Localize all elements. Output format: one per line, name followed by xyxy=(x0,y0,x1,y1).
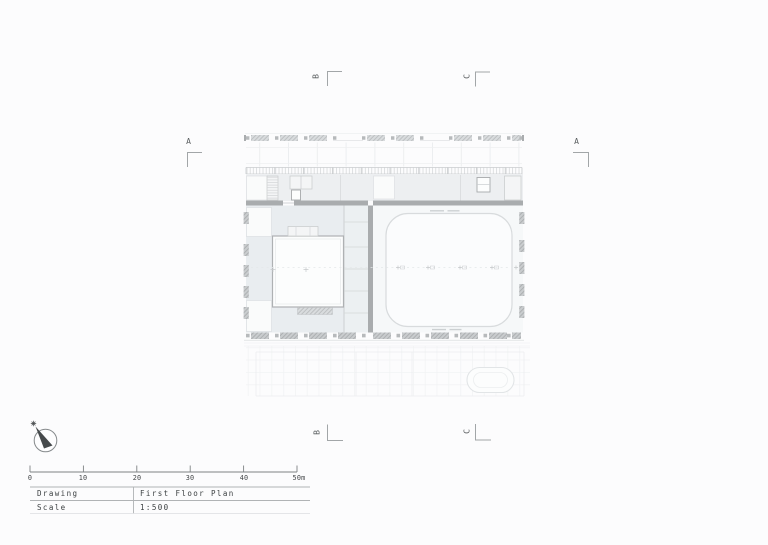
section-cut-bracket-c-bottom xyxy=(476,424,492,440)
room xyxy=(374,176,395,199)
central-wall xyxy=(368,206,373,333)
section-letter-a-right: A xyxy=(572,137,582,146)
section-cut-bracket-b-top xyxy=(328,72,343,87)
drawing-sheet: A A B C B C 0 10 20 30 40 50m Drawing Fi… xyxy=(0,0,768,545)
scale-tick-label: 10 xyxy=(70,474,96,482)
hall-rounded-outline xyxy=(386,214,512,327)
courtyard-appendage xyxy=(288,227,318,237)
section-letter-c-bottom: C xyxy=(462,427,471,437)
drawing-scale: 1:500 xyxy=(140,503,170,512)
room xyxy=(292,190,301,200)
section-letter-c-top: C xyxy=(462,72,471,82)
section-letter-a-left: A xyxy=(184,137,194,146)
bottom-facade-hatched-walls xyxy=(251,333,521,340)
scale-tick-label: 30 xyxy=(177,474,203,482)
section-cut-bracket-b-bottom xyxy=(328,425,344,441)
corner-room xyxy=(247,301,272,332)
courtyard xyxy=(273,236,344,307)
building-plan xyxy=(244,134,530,397)
scale-tick-label: 20 xyxy=(124,474,150,482)
section-cut-bracket-c-top xyxy=(476,72,491,87)
scale-tick-label: 0 xyxy=(17,474,43,482)
scale-bar xyxy=(30,466,297,473)
drawing-title: First Floor Plan xyxy=(140,489,235,498)
section-cut-bracket-a-left xyxy=(188,153,203,168)
site-below-faint xyxy=(244,343,530,396)
glazing-mullions xyxy=(246,168,522,175)
courtyard-bottom-wall xyxy=(298,308,333,315)
floor-plan-canvas xyxy=(0,0,768,545)
scale-tick-label: 50m xyxy=(286,474,312,482)
scale-tick-label: 40 xyxy=(231,474,257,482)
section-letter-b-top: B xyxy=(311,71,320,81)
section-letter-b-bottom: B xyxy=(312,427,321,437)
running-track xyxy=(467,368,514,393)
title-block-label-drawing: Drawing xyxy=(37,489,78,498)
terrace-strip xyxy=(246,143,522,167)
section-cut-bracket-a-right xyxy=(573,153,589,168)
north-arrow-icon xyxy=(31,421,57,452)
title-block-label-scale: Scale xyxy=(37,503,67,512)
room xyxy=(247,176,268,200)
room xyxy=(505,176,522,200)
corner-room xyxy=(247,208,272,237)
stair-treads xyxy=(268,177,278,200)
